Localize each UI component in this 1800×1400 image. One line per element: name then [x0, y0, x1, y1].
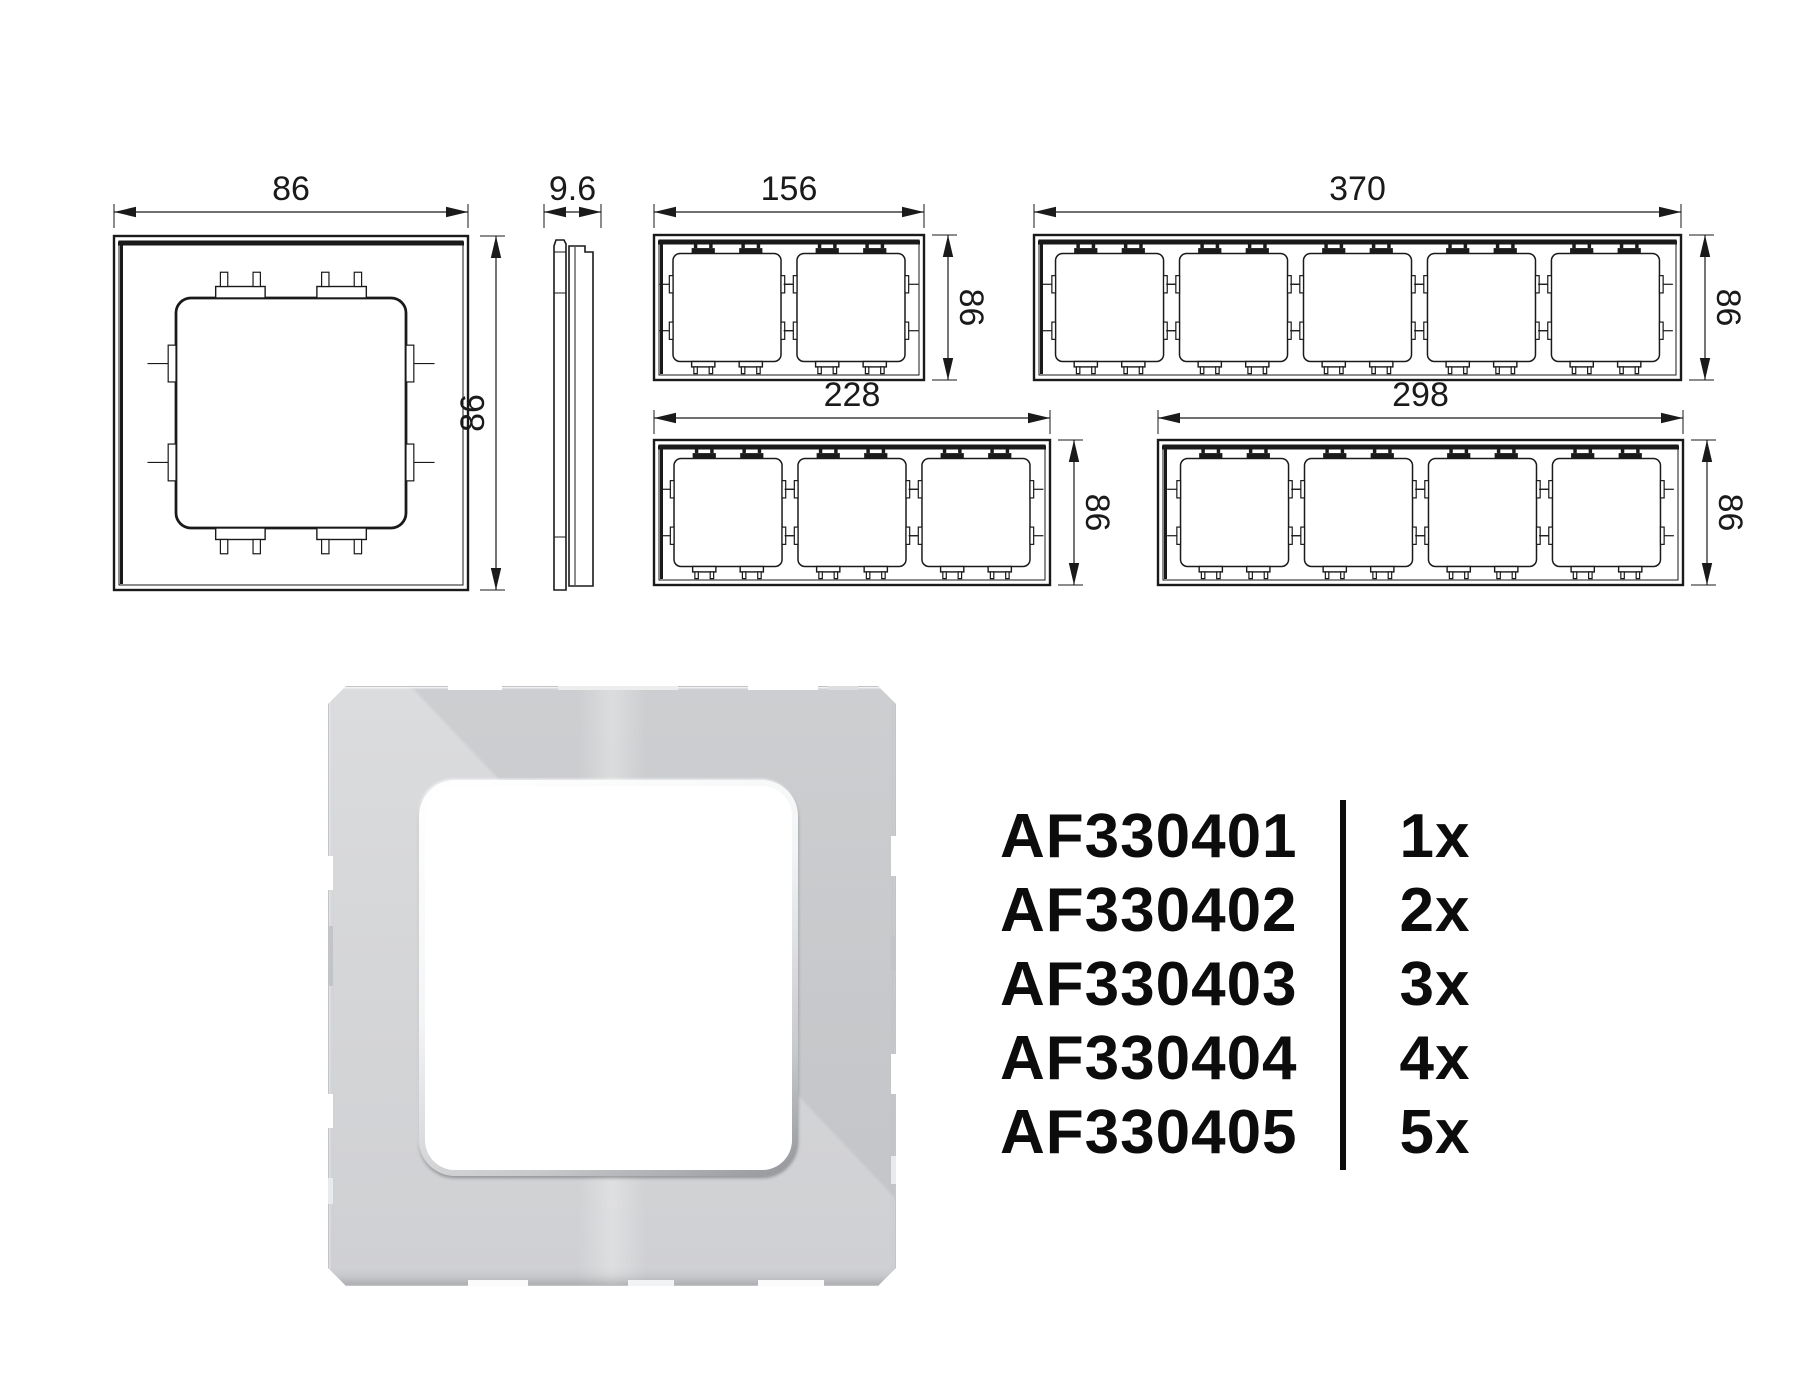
frame-2-gang-drawing [654, 235, 924, 380]
dimension-height: 86 [1058, 440, 1116, 585]
dimension-label: 86 [1709, 289, 1747, 327]
dimension-width: 156 [654, 170, 924, 228]
frame-window-rim [419, 780, 798, 1176]
dimension-label: 86 [952, 289, 990, 327]
glass-edge-notch [328, 926, 333, 986]
product-photo-1-gang-frame [328, 686, 896, 1286]
dimension-label: 86 [1078, 494, 1116, 532]
glass-edge-notch [891, 836, 896, 876]
datasheet-canvas: 86869.615686370862288629886 AF330401AF33… [0, 0, 1800, 1400]
frame-window-opening [425, 786, 792, 1170]
dimension-label: 86 [454, 394, 492, 432]
dimension-width: 86 [114, 170, 468, 228]
frame-5-gang-drawing [1034, 235, 1681, 380]
glass-surface [328, 686, 896, 1286]
dimension-label: 86 [272, 170, 310, 208]
glass-edge-notch [328, 1094, 333, 1128]
frame-side-profile-view [554, 240, 593, 590]
frame-3-gang-drawing [654, 440, 1050, 585]
part-code: AF330402 [1000, 874, 1298, 948]
dimension-width: 370 [1034, 170, 1681, 228]
dimension-label: 86 [1711, 494, 1749, 532]
part-qty: 5x [1400, 1096, 1471, 1170]
glass-edge-notch [448, 686, 502, 690]
glass-edge-notch [328, 856, 333, 890]
glass-edge-notch [758, 1280, 824, 1286]
dimension-width: 228 [654, 376, 1050, 434]
glass-edge-notch [468, 1280, 528, 1286]
parts-list: AF330401AF330402AF330403AF330404AF330405… [1000, 800, 1471, 1170]
frame-4-gang-drawing [1158, 440, 1683, 585]
part-code: AF330403 [1000, 948, 1298, 1022]
part-qty: 4x [1400, 1022, 1471, 1096]
dimension-label: 228 [824, 376, 881, 414]
glass-edge-notch [891, 1054, 896, 1094]
part-codes-column: AF330401AF330402AF330403AF330404AF330405 [1000, 800, 1298, 1170]
dimension-label: 298 [1392, 376, 1449, 414]
part-code: AF330405 [1000, 1096, 1298, 1170]
glass-edge-notch [558, 686, 678, 690]
glass-edge-notch [891, 936, 896, 970]
glass-edge-notch [748, 686, 818, 690]
part-qty: 2x [1400, 874, 1471, 948]
dimension-height: 86 [1689, 235, 1747, 380]
dimension-label: 370 [1329, 170, 1386, 208]
part-code: AF330401 [1000, 800, 1298, 874]
part-code: AF330404 [1000, 1022, 1298, 1096]
dimension-height: 86 [1691, 440, 1749, 585]
dimension-height: 86 [932, 235, 990, 380]
dimension-label: 156 [761, 170, 818, 208]
dimension-width: 298 [1158, 376, 1683, 434]
glass-edge-notch [828, 686, 858, 690]
dimension-label: 9.6 [549, 170, 596, 208]
frame-1-gang-front-view [114, 236, 468, 590]
dimension-width: 9.6 [544, 170, 601, 228]
technical-drawings: 86869.615686370862288629886 [0, 0, 1800, 650]
glass-edge-notch [891, 1156, 896, 1184]
part-quantities-column: 1x2x3x4x5x [1400, 800, 1471, 1170]
glass-edge-notch [628, 1280, 674, 1286]
part-qty: 3x [1400, 948, 1471, 1022]
parts-list-divider [1340, 800, 1346, 1170]
glass-edge-notch [328, 1178, 333, 1204]
part-qty: 1x [1400, 800, 1471, 874]
